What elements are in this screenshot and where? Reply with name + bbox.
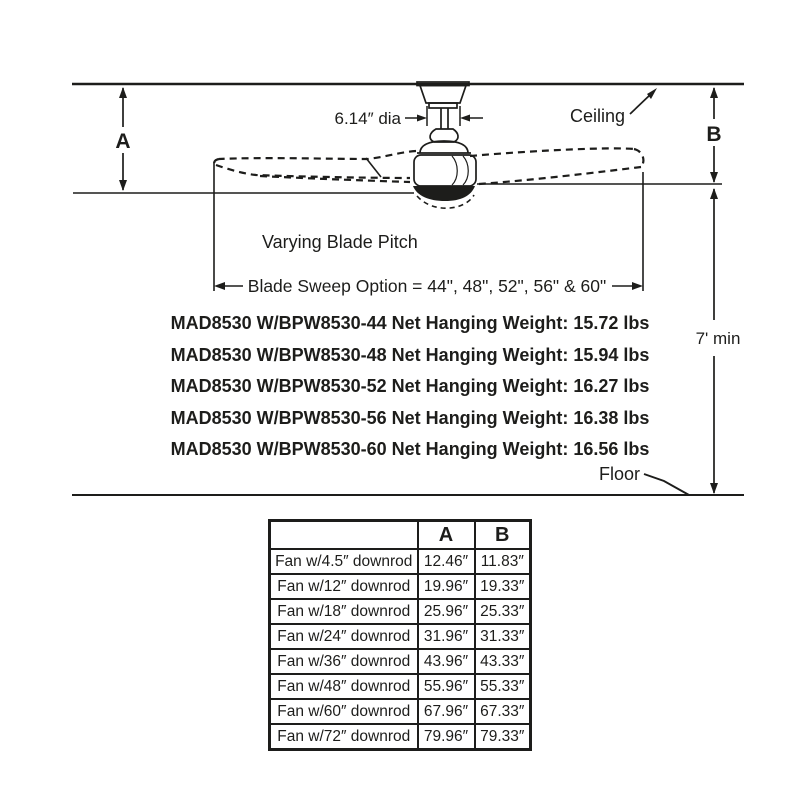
table-row: Fan w/4.5″ downrod 12.46″ 11.83″: [270, 549, 531, 574]
value-b: 25.33″: [475, 599, 531, 624]
table-row: Fan w/18″ downrod 25.96″ 25.33″: [270, 599, 531, 624]
value-a: 19.96″: [418, 574, 475, 599]
arrowhead-7ft-bottom: [710, 483, 718, 494]
arrowhead-a-top: [119, 87, 127, 98]
fan-ball-mount: [430, 129, 458, 142]
fan-bottom-cap: [413, 186, 475, 201]
value-b: 19.33″: [475, 574, 531, 599]
ceiling-label: Ceiling: [570, 106, 625, 126]
row-label: Fan w/36″ downrod: [270, 649, 418, 674]
value-b: 11.83″: [475, 549, 531, 574]
dia-arrowhead-left: [417, 115, 427, 122]
arrowhead-b-bottom: [710, 172, 718, 183]
table-row: Fan w/72″ downrod 79.96″ 79.33″: [270, 724, 531, 750]
header-col-a: A: [418, 521, 475, 550]
value-a: 31.96″: [418, 624, 475, 649]
row-label: Fan w/4.5″ downrod: [270, 549, 418, 574]
floor-label: Floor: [599, 464, 640, 484]
downrod-dimensions-table: A B Fan w/4.5″ downrod 12.46″ 11.83″ Fan…: [268, 519, 532, 751]
sweep-arrowhead-left: [214, 282, 225, 290]
table-header-row: A B: [270, 521, 531, 550]
value-a: 25.96″: [418, 599, 475, 624]
row-label: Fan w/24″ downrod: [270, 624, 418, 649]
header-col-b: B: [475, 521, 531, 550]
value-b: 67.33″: [475, 699, 531, 724]
dia-arrowhead-right: [460, 115, 470, 122]
row-label: Fan w/60″ downrod: [270, 699, 418, 724]
dim-a-label: A: [115, 130, 130, 153]
hanging-weight-list: MAD8530 W/BPW8530-44 Net Hanging Weight:…: [60, 308, 760, 466]
arrowhead-b-top: [710, 87, 718, 98]
right-blade-outline: [470, 148, 643, 184]
hanging-weight-line: MAD8530 W/BPW8530-44 Net Hanging Weight:…: [60, 308, 760, 340]
value-b: 43.33″: [475, 649, 531, 674]
fan-spec-sheet: A B 7' min Ceiling Floor 6.14″ dia: [0, 0, 800, 800]
row-label: Fan w/72″ downrod: [270, 724, 418, 750]
value-b: 31.33″: [475, 624, 531, 649]
fan-motor-contour-2: [463, 156, 468, 185]
value-b: 79.33″: [475, 724, 531, 750]
table-row: Fan w/48″ downrod 55.96″ 55.33″: [270, 674, 531, 699]
header-blank: [270, 521, 418, 550]
dia-label: 6.14″ dia: [334, 109, 401, 128]
table-row: Fan w/24″ downrod 31.96″ 31.33″: [270, 624, 531, 649]
table-row: Fan w/60″ downrod 67.96″ 67.33″: [270, 699, 531, 724]
hanging-weight-line: MAD8530 W/BPW8530-56 Net Hanging Weight:…: [60, 403, 760, 435]
ceiling-leader-line: [630, 93, 652, 114]
blade-pitch-tick: [366, 158, 381, 177]
hanging-weight-line: MAD8530 W/BPW8530-48 Net Hanging Weight:…: [60, 340, 760, 372]
row-label: Fan w/18″ downrod: [270, 599, 418, 624]
blade-sweep-label: Blade Sweep Option = 44", 48", 52", 56" …: [248, 276, 606, 296]
hanging-weight-line: MAD8530 W/BPW8530-52 Net Hanging Weight:…: [60, 371, 760, 403]
row-label: Fan w/12″ downrod: [270, 574, 418, 599]
fan-canopy: [417, 82, 469, 108]
table-row: Fan w/12″ downrod 19.96″ 19.33″: [270, 574, 531, 599]
blade-pitch-label: Varying Blade Pitch: [262, 232, 418, 252]
left-blade-outline: [214, 151, 416, 182]
value-a: 67.96″: [418, 699, 475, 724]
value-a: 79.96″: [418, 724, 475, 750]
arrowhead-a-bottom: [119, 180, 127, 191]
fan-downrod: [441, 108, 448, 129]
value-a: 43.96″: [418, 649, 475, 674]
arrowhead-7ft-top: [710, 188, 718, 199]
value-a: 55.96″: [418, 674, 475, 699]
value-b: 55.33″: [475, 674, 531, 699]
fan-motor-contour-1: [452, 156, 457, 185]
row-label: Fan w/48″ downrod: [270, 674, 418, 699]
fan-motor-housing: [414, 155, 476, 186]
table-row: Fan w/36″ downrod 43.96″ 43.33″: [270, 649, 531, 674]
floor-leader-line: [644, 474, 689, 495]
blade-sweep-dimension: [214, 162, 643, 291]
value-a: 12.46″: [418, 549, 475, 574]
sweep-arrowhead-right: [632, 282, 643, 290]
dim-b-label: B: [706, 123, 721, 146]
hanging-weight-line: MAD8530 W/BPW8530-60 Net Hanging Weight:…: [60, 434, 760, 466]
dia-dimension: [405, 106, 483, 126]
